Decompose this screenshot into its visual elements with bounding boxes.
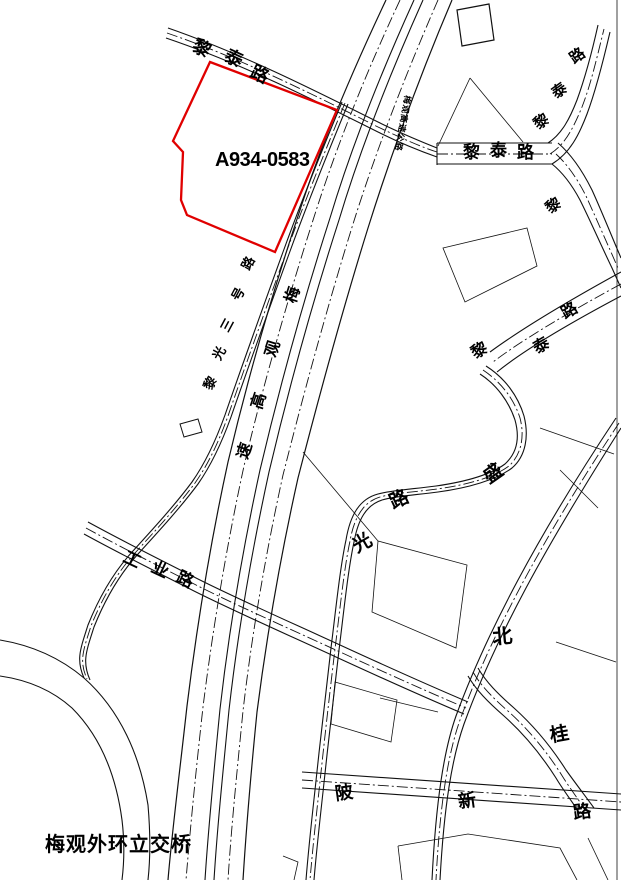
boundary-line-bottom-4 bbox=[283, 856, 298, 880]
boundary-line-bottom-3 bbox=[588, 838, 608, 880]
expressway-small-label: 梅观高速公路 bbox=[393, 95, 413, 153]
boundary-line-ne-1 bbox=[540, 428, 614, 454]
boundary-wedge-left bbox=[438, 78, 470, 146]
liguang-char: 三 bbox=[217, 316, 236, 335]
bei-road-edge-2 bbox=[440, 428, 621, 880]
expressway-median-char: 速 bbox=[234, 440, 256, 461]
gui-road-char: 桂 bbox=[547, 721, 571, 747]
sheng-road-edge-1 bbox=[314, 366, 526, 880]
litai-se-edge-2 bbox=[552, 164, 621, 288]
gui-road-edge-1 bbox=[478, 668, 594, 808]
poxin-char: 新 bbox=[457, 789, 478, 812]
small-structure-box bbox=[180, 419, 202, 437]
expressway-right-edge bbox=[243, 0, 452, 880]
boundary-quad-right-center bbox=[443, 228, 537, 302]
building-outline bbox=[457, 4, 494, 46]
liguang-char: 号 bbox=[228, 285, 247, 304]
meiguan-expressway bbox=[168, 0, 452, 880]
gongye-road-edge-1 bbox=[88, 522, 468, 702]
boundary-line-bottom-1 bbox=[398, 834, 577, 880]
expressway-median-char: 高 bbox=[247, 390, 270, 411]
expressway-left-centerline bbox=[186, 0, 400, 880]
litai-nw-char: 黎 bbox=[189, 35, 214, 62]
litai-ne-char: 泰 bbox=[547, 78, 571, 102]
boundary-connector bbox=[303, 452, 378, 541]
litai-road-middle bbox=[490, 272, 621, 372]
gui-road bbox=[468, 668, 594, 814]
cadastral-lines bbox=[283, 4, 616, 880]
liguang-char: 光 bbox=[209, 344, 229, 363]
poxin-char: 陂 bbox=[334, 781, 355, 804]
expressway-median-right-line bbox=[214, 0, 423, 880]
expressway-median-char: 梅 bbox=[281, 284, 304, 305]
expressway-median-left-line bbox=[205, 0, 414, 880]
gongye-road-edge-2 bbox=[84, 534, 464, 714]
litai-ne-char: 路 bbox=[566, 43, 589, 67]
litai-road-southeast bbox=[552, 143, 621, 288]
litai-mid-centerline bbox=[493, 284, 621, 362]
bei-road-centerline bbox=[436, 423, 619, 880]
litai-mid-edge-1 bbox=[490, 272, 621, 352]
boundary-quad-small bbox=[331, 682, 397, 742]
gongye-road bbox=[84, 522, 468, 714]
liguang-char: 路 bbox=[238, 253, 258, 272]
litai-h-char: 泰 bbox=[490, 140, 508, 160]
gui-road-edge-2 bbox=[468, 676, 580, 814]
litai-mid-char: 路 bbox=[558, 298, 582, 323]
liguang-char: 黎 bbox=[200, 374, 219, 393]
litai-se-edge-1 bbox=[558, 143, 621, 258]
litai-mid-char: 黎 bbox=[468, 338, 491, 362]
litai-ne-char: 黎 bbox=[530, 110, 553, 133]
litai-se-centerline bbox=[556, 154, 618, 268]
litai-h-char: 黎 bbox=[463, 142, 480, 162]
sheng-road-char: 盛 bbox=[479, 458, 508, 488]
boundary-quad-center bbox=[372, 541, 467, 648]
li-road-char: 黎 bbox=[542, 194, 565, 217]
bei-road-char: 北 bbox=[491, 624, 513, 649]
boundary-wedge-right bbox=[470, 78, 523, 142]
gongye-char: 路 bbox=[173, 566, 198, 592]
boundary-line-bottom-2 bbox=[398, 846, 402, 880]
litai-h-char: 路 bbox=[517, 142, 535, 162]
parcel-id-label: A934-0583 bbox=[215, 149, 310, 171]
expressway-median-char: 观 bbox=[262, 338, 284, 359]
bridge-caption: 梅观外环立交桥 bbox=[45, 832, 192, 856]
map-canvas: A934-0583 梅观外环立交桥 黎 泰 路 黎 泰 路 路 泰 黎 黎 黎 … bbox=[0, 0, 621, 880]
parcel-map: A934-0583 梅观外环立交桥 黎 泰 路 黎 泰 路 路 泰 黎 黎 黎 … bbox=[0, 0, 621, 880]
boundary-line-south-1 bbox=[380, 698, 438, 712]
liguang-road-edge-2 bbox=[86, 104, 348, 680]
boundary-line-east bbox=[556, 642, 616, 662]
